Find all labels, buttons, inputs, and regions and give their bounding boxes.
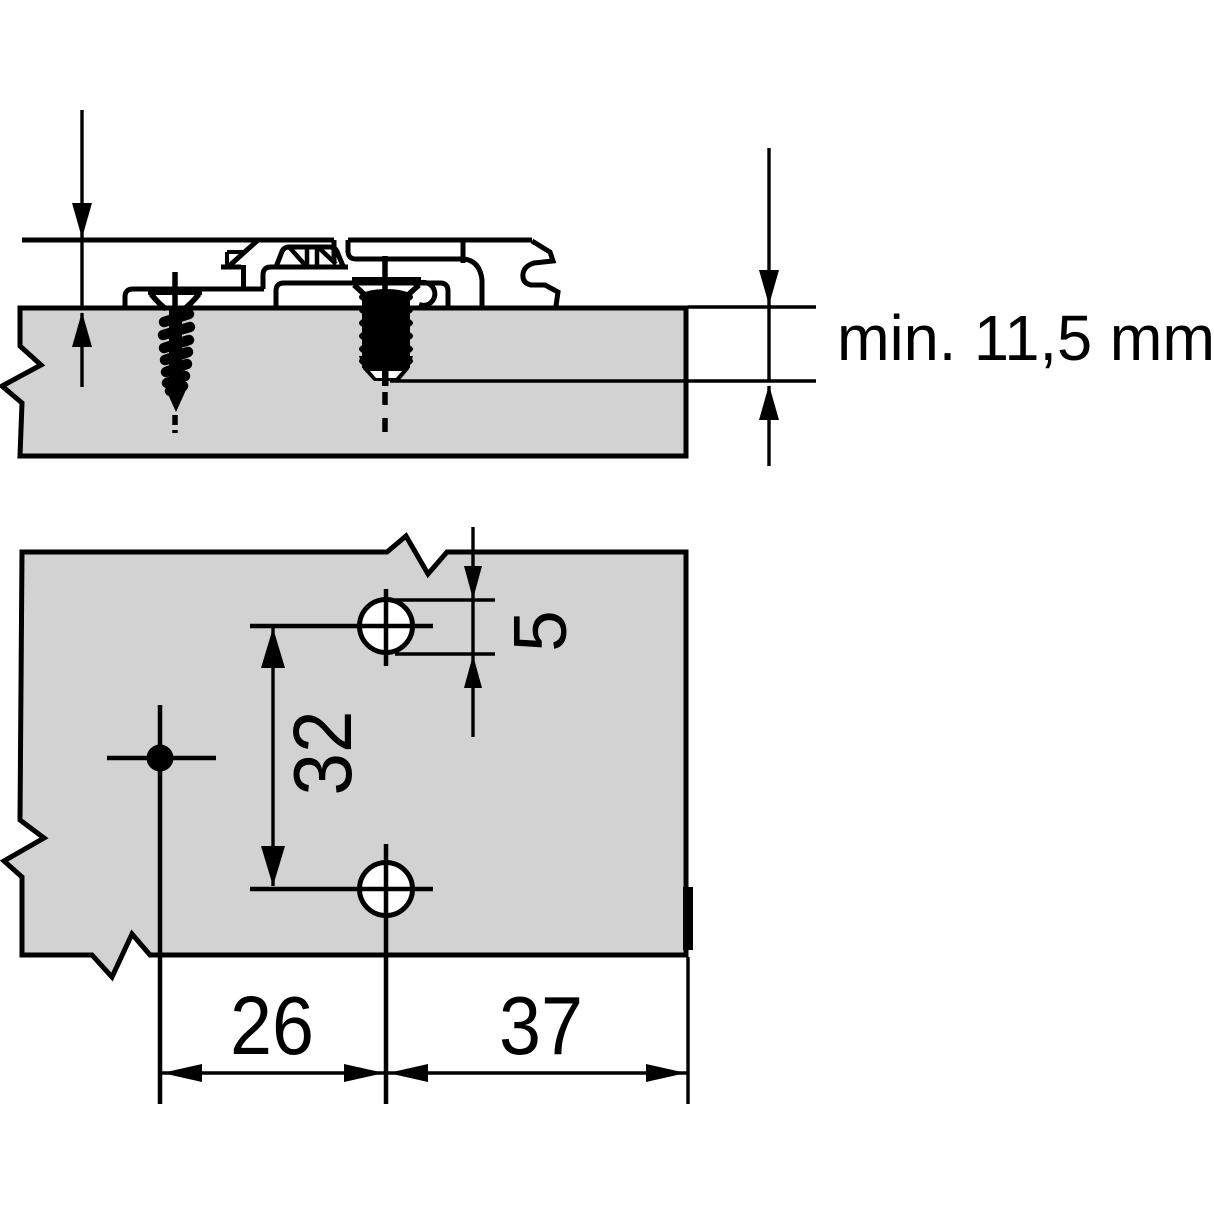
svg-text:5: 5 bbox=[498, 610, 582, 652]
svg-text:32: 32 bbox=[276, 711, 369, 796]
svg-text:min. 11,5 mm: min. 11,5 mm bbox=[837, 302, 1214, 374]
svg-text:37: 37 bbox=[499, 979, 583, 1072]
svg-text:26: 26 bbox=[230, 979, 314, 1072]
